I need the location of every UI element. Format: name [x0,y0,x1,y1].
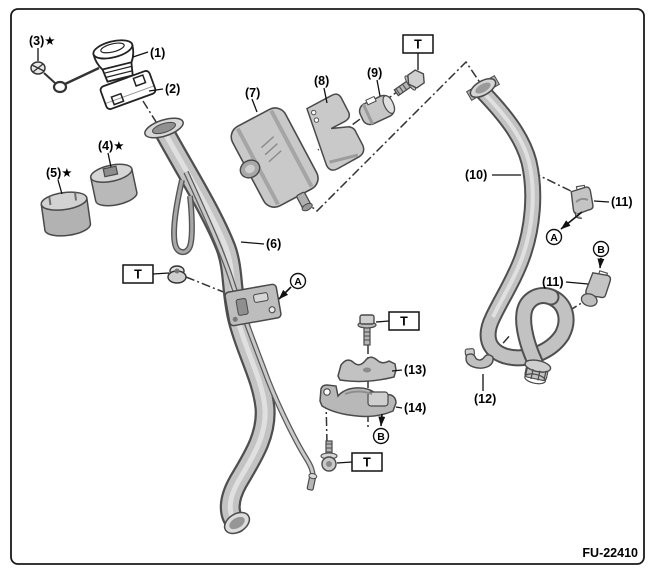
label-part-14: (14) [404,401,426,415]
torque-label-left: T [134,268,142,282]
label-part-1: (1) [150,46,165,60]
label-part-5: (5)★ [46,166,72,180]
torque-nut [168,266,186,283]
label-part-8: (8) [314,74,329,88]
ref-letter-a2: A [550,232,558,244]
parts-diagram: (3)★ (1) (2) (4)★ (5)★ (6) (7) (8) (9) (… [0,0,653,573]
label-part-4: (4)★ [98,139,124,153]
part-5-grommet [40,190,92,239]
ref-letter-b2: B [377,431,385,443]
label-part-9: (9) [367,66,382,80]
label-part-12: (12) [474,392,496,406]
label-part-11b: (11) [542,275,564,289]
torque-label-bottom: T [363,456,371,470]
label-part-13: (13) [404,363,426,377]
ref-letter-a1: A [294,276,302,288]
figure-code: FU-22410 [582,546,638,560]
label-part-3: (3)★ [29,34,55,48]
arrow-b-to-clip [600,258,601,268]
torque-label-mid: T [400,315,408,329]
label-part-11a: (11) [611,195,633,209]
label-part-2: (2) [165,82,180,96]
label-part-10: (10) [465,168,487,182]
arrow-clamp-to-b [381,414,382,426]
label-part-7: (7) [245,86,260,100]
torque-label-top: T [414,38,422,52]
ref-letter-b1: B [597,244,605,256]
label-part-6: (6) [266,237,281,251]
